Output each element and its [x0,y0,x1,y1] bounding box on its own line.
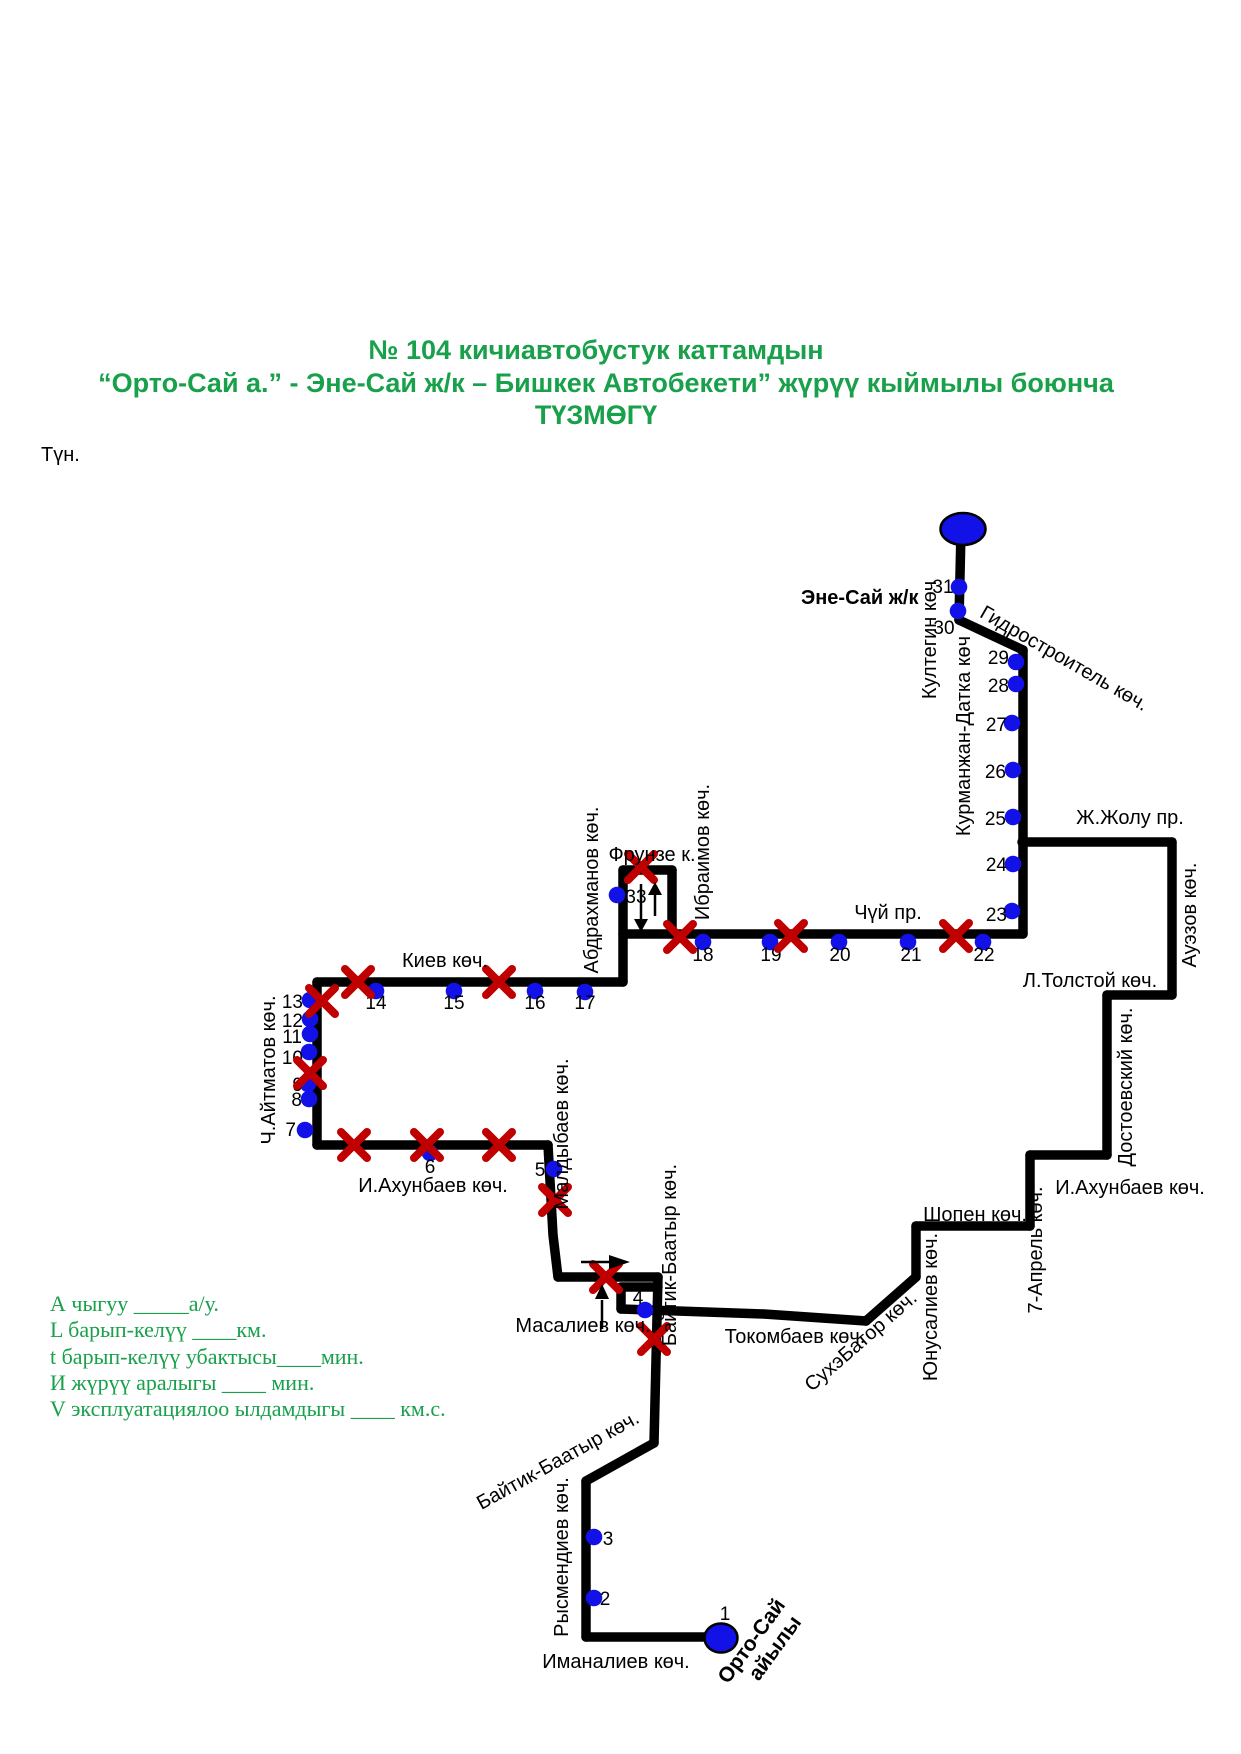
svg-text:7: 7 [285,1120,296,1141]
svg-text:13: 13 [282,992,303,1013]
svg-text:Байтик-Баатыр көч.: Байтик-Баатыр көч. [659,1164,681,1346]
svg-text:Достоевский көч.: Достоевский көч. [1115,1008,1137,1167]
svg-text:22: 22 [973,945,994,966]
svg-text:27: 27 [986,715,1007,736]
svg-text:Шопен көч.: Шопен көч. [923,1204,1027,1226]
svg-text:Чүй пр.: Чүй пр. [854,902,922,924]
svg-text:16: 16 [524,993,545,1014]
svg-text:29: 29 [988,648,1009,669]
svg-text:А чыгуу _____а/у.: А чыгуу _____а/у. [50,1291,219,1316]
svg-text:21: 21 [900,945,921,966]
svg-text:t барып-келүү убактысы____мин.: t барып-келүү убактысы____мин. [50,1344,364,1369]
svg-text:Ж.Жолу пр.: Ж.Жолу пр. [1076,807,1184,829]
svg-text:Эне-Сай ж/к: Эне-Сай ж/к [801,587,919,609]
svg-text:Юнусалиев көч.: Юнусалиев көч. [920,1233,942,1381]
svg-text:И.Ахунбаев көч.: И.Ахунбаев көч. [1055,1177,1205,1199]
svg-text:28: 28 [988,676,1009,697]
svg-text:L барып-келүү ____км.: L барып-келүү ____км. [50,1317,266,1342]
svg-text:23: 23 [986,905,1007,926]
svg-text:Рысмендиев көч.: Рысмендиев көч. [551,1477,573,1637]
svg-text:Токомбаев көч.: Токомбаев көч. [725,1326,866,1348]
svg-text:Ауэзов көч.: Ауэзов көч. [1179,863,1201,968]
svg-text:Ч.Айтматов көч.: Ч.Айтматов көч. [258,995,280,1144]
svg-text:Абдрахманов көч.: Абдрахманов көч. [581,807,603,974]
svg-text:25: 25 [985,809,1006,830]
svg-text:ТҮЗМӨГҮ: ТҮЗМӨГҮ [535,400,658,430]
svg-text:Киев көч.: Киев көч. [402,950,488,972]
svg-text:5: 5 [535,1160,546,1181]
svg-text:33: 33 [625,887,646,908]
svg-text:3: 3 [603,1529,614,1550]
svg-text:Л.Толстой көч.: Л.Толстой көч. [1023,970,1157,992]
svg-text:Култегин көч: Култегин көч [919,581,941,699]
svg-text:Малдыбаев көч.: Малдыбаев көч. [551,1059,573,1210]
svg-text:17: 17 [574,993,595,1014]
svg-text:4: 4 [633,1288,644,1309]
svg-text:Масалиев көч.: Масалиев көч. [515,1315,650,1337]
svg-text:“Орто-Сай а.” - Эне-Сай ж/к –: “Орто-Сай а.” - Эне-Сай ж/к – Бишкек Авт… [98,368,1115,398]
svg-text:И жүрүү аралыгы ____ м: И жүрүү аралыгы ____ мин. [50,1370,314,1395]
svg-text:26: 26 [985,762,1006,783]
svg-text:20: 20 [829,945,850,966]
svg-text:Фрунзе к.: Фрунзе к. [608,844,695,866]
svg-text:24: 24 [986,855,1008,876]
svg-text:7-Апрель көч.: 7-Апрель көч. [1025,1186,1047,1313]
svg-text:2: 2 [600,1589,611,1610]
svg-text:V эксплуатациялоо ылдамдыгы __: V эксплуатациялоо ылдамдыгы ____ км.с. [50,1396,446,1421]
svg-text:№ 104 кичиавтобустук каттамды: № 104 кичиавтобустук каттамдын [368,335,823,365]
svg-text:Иманалиев көч.: Иманалиев көч. [542,1651,689,1673]
svg-text:1: 1 [720,1604,731,1625]
svg-text:Түн.: Түн. [41,444,80,466]
svg-text:И.Ахунбаев көч.: И.Ахунбаев көч. [358,1175,508,1197]
svg-text:15: 15 [443,993,464,1014]
svg-text:Курманжан-Датка көч: Курманжан-Датка көч [953,636,975,836]
svg-text:12: 12 [282,1011,303,1032]
